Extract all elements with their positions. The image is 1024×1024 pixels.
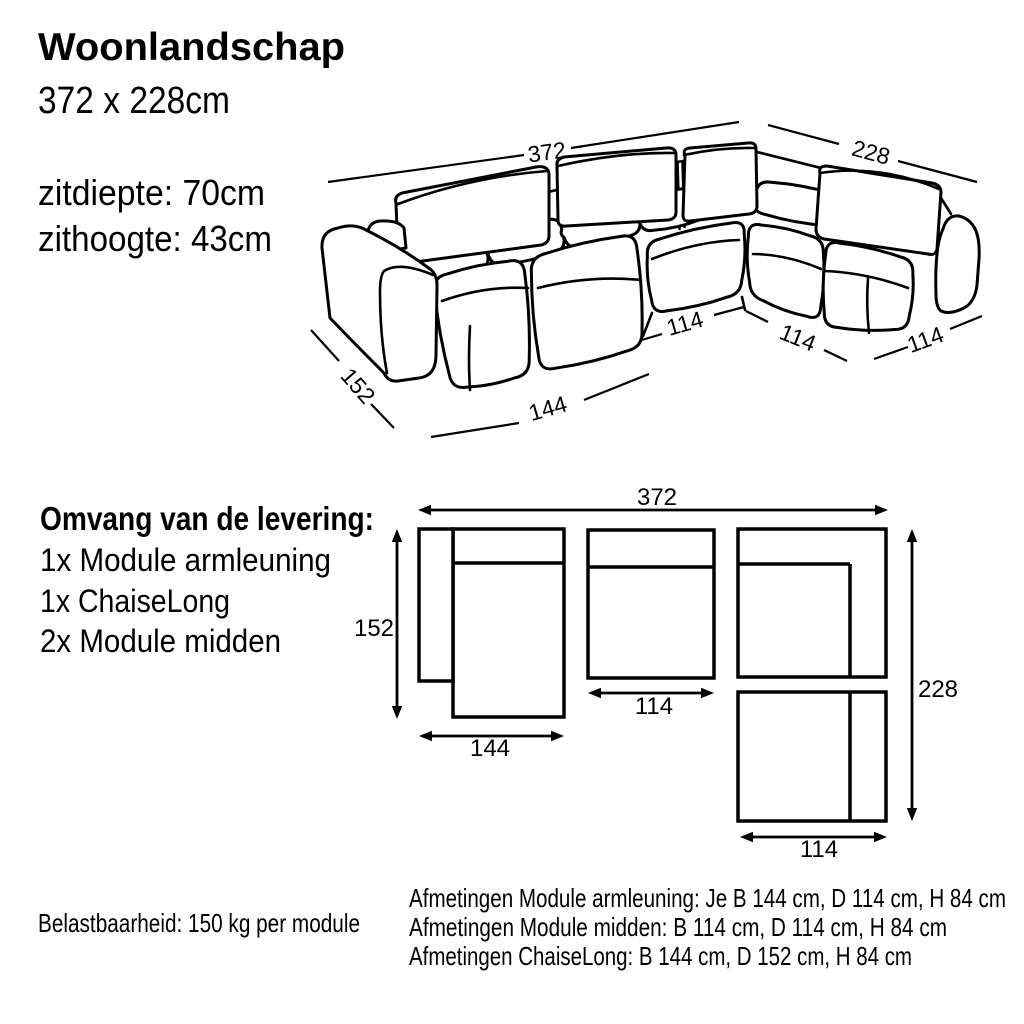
svg-text:152: 152 (354, 615, 394, 642)
svg-text:144: 144 (470, 735, 510, 762)
svg-text:Afmetingen Module midden: B 11: Afmetingen Module midden: B 114 cm, D 11… (409, 912, 947, 942)
svg-text:2x Module midden: 2x Module midden (40, 623, 281, 659)
svg-text:Woonlandschap: Woonlandschap (38, 26, 345, 69)
svg-text:228: 228 (918, 676, 958, 703)
svg-text:114: 114 (800, 836, 838, 863)
svg-text:zithoogte: 43cm: zithoogte: 43cm (38, 218, 272, 259)
svg-text:Belastbaarheid: 150 kg per mod: Belastbaarheid: 150 kg per module (38, 908, 360, 938)
svg-text:Afmetingen ChaiseLong: B 144 c: Afmetingen ChaiseLong: B 144 cm, D 152 c… (409, 941, 912, 971)
svg-text:372 x 228cm: 372 x 228cm (38, 80, 230, 122)
svg-text:1x Module armleuning: 1x Module armleuning (40, 542, 331, 578)
svg-text:Afmetingen Module armleuning:: Afmetingen Module armleuning: Je B 144 c… (409, 883, 1006, 913)
svg-text:zitdiepte: 70cm: zitdiepte: 70cm (38, 172, 265, 213)
svg-text:1x ChaiseLong: 1x ChaiseLong (40, 583, 230, 619)
svg-text:114: 114 (635, 693, 673, 720)
svg-text:Omvang van de levering:: Omvang van de levering: (40, 500, 374, 537)
svg-text:372: 372 (637, 484, 677, 511)
